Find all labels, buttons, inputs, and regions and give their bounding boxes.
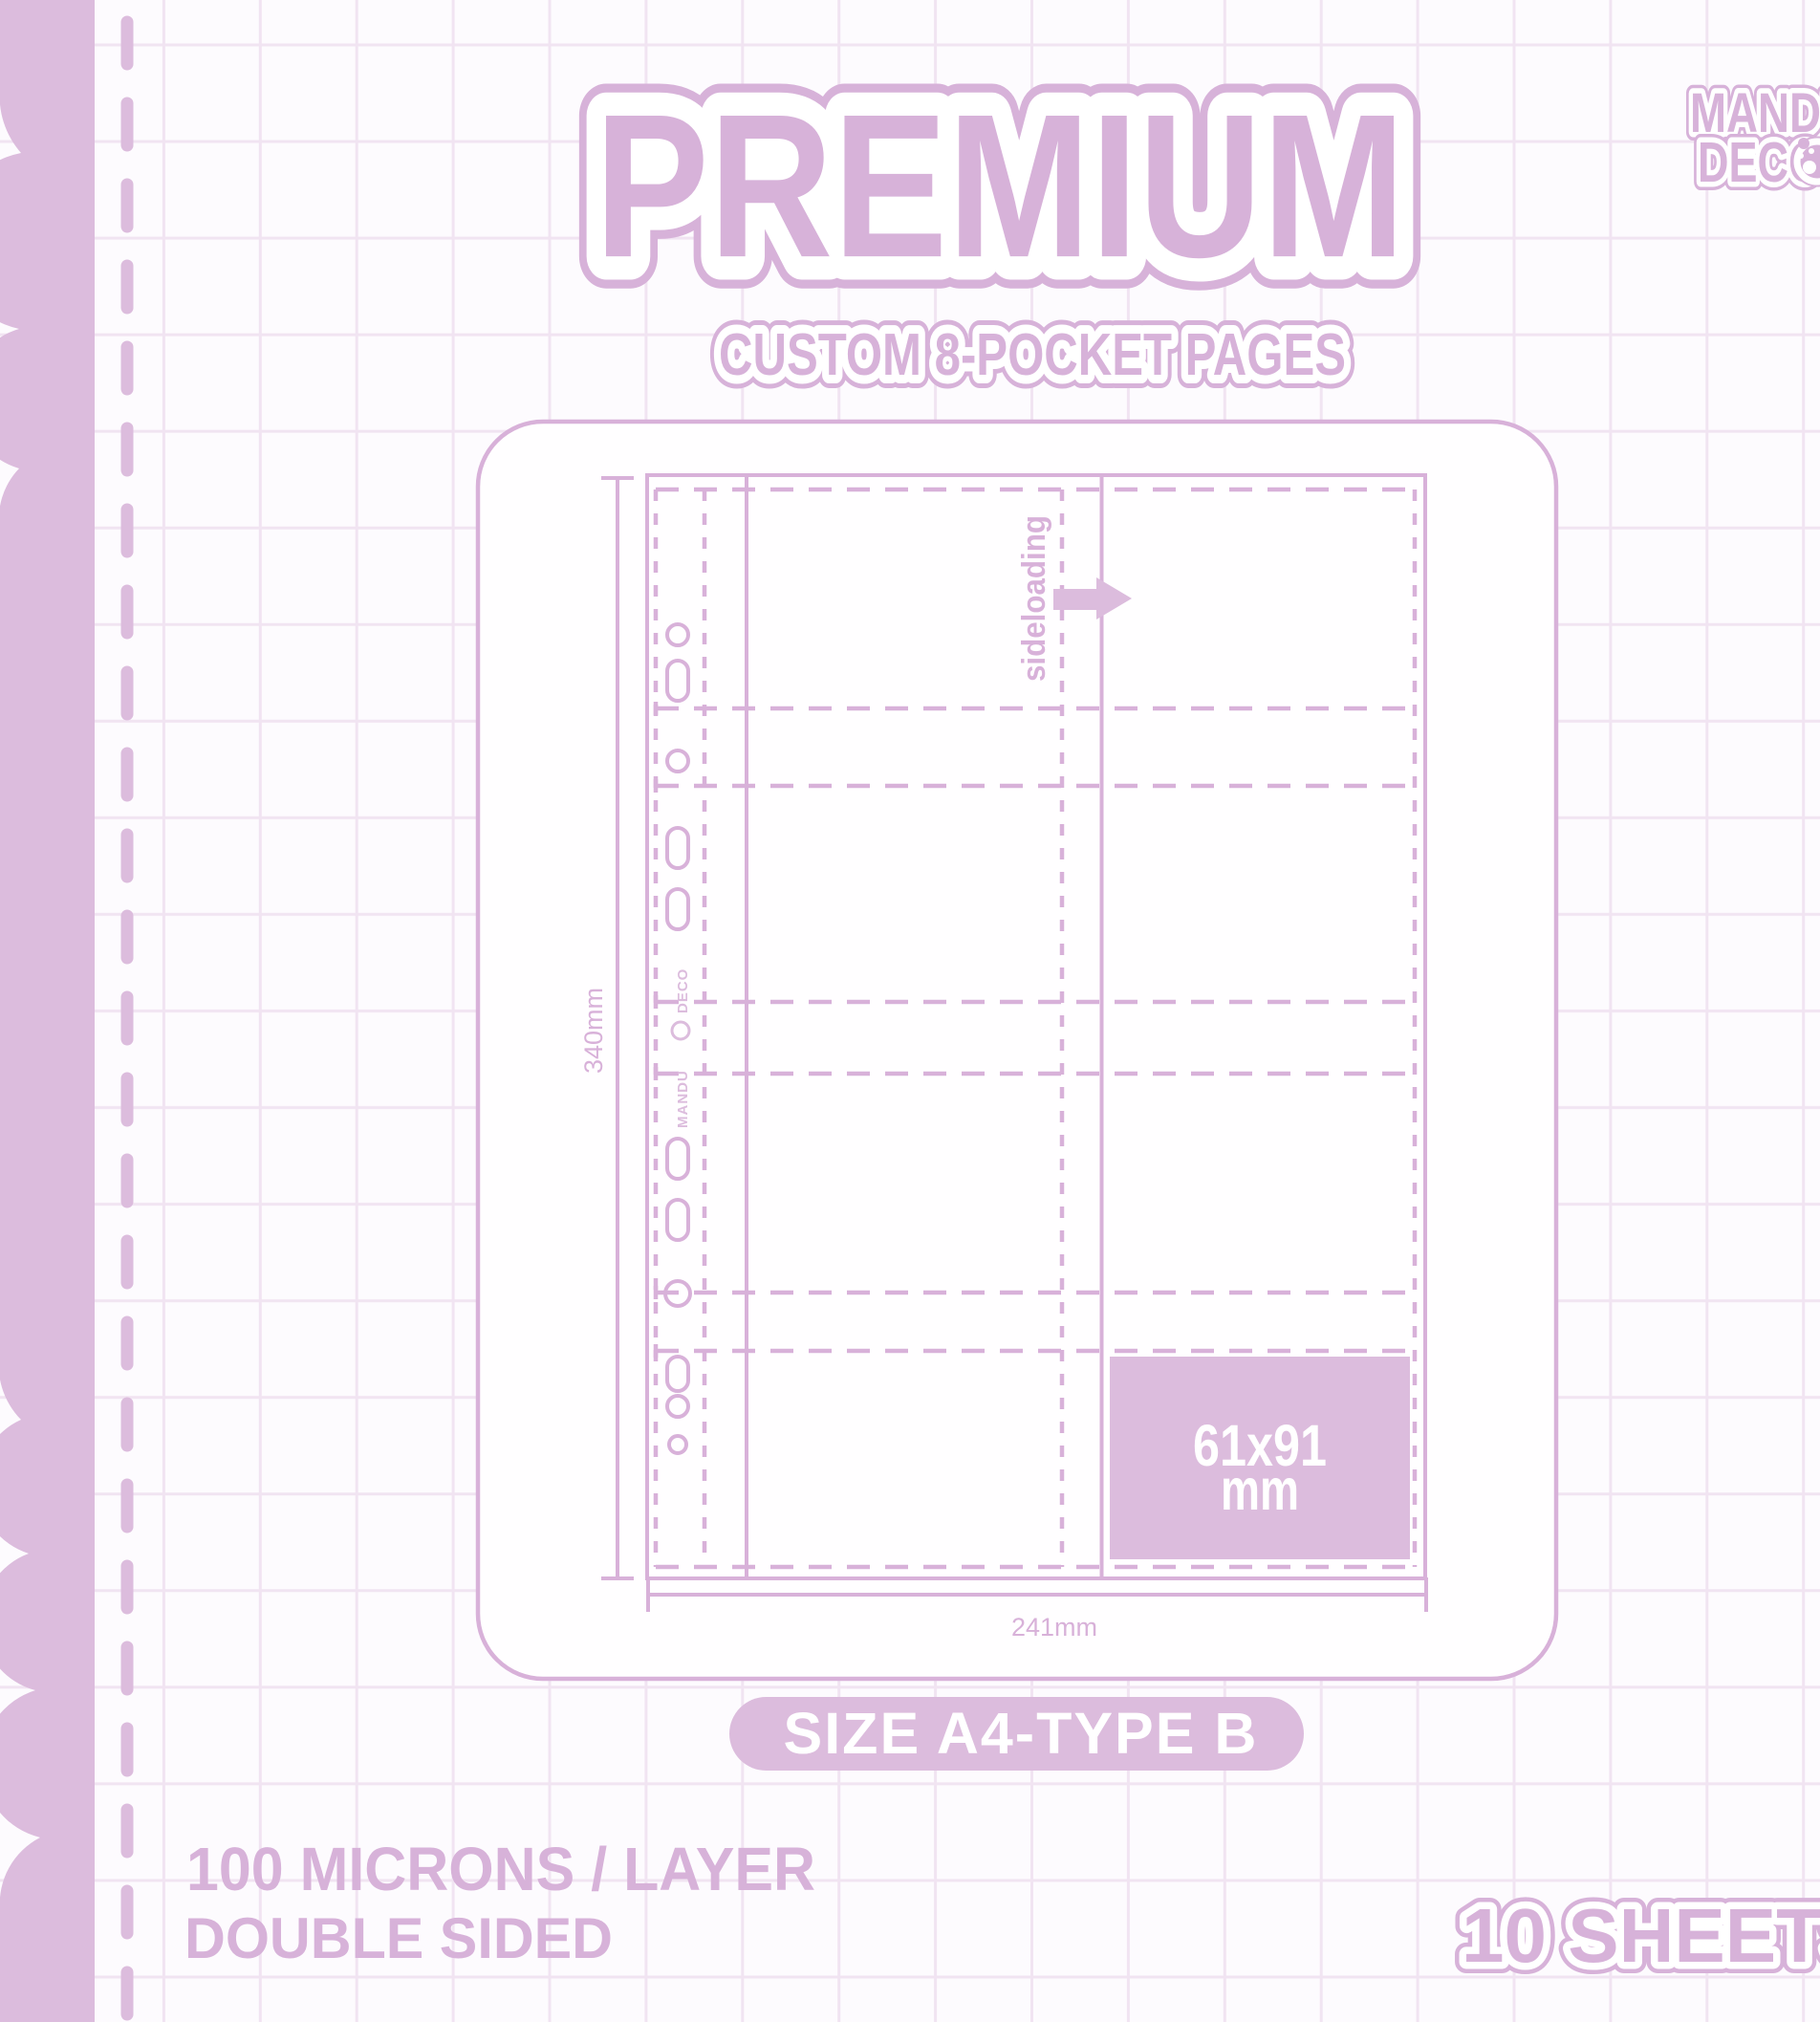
svg-text:100 MICRONS / LAYER: 100 MICRONS / LAYER bbox=[186, 1835, 815, 1903]
svg-text:340mm: 340mm bbox=[579, 988, 608, 1074]
svg-text:SIZE A4-TYPE B: SIZE A4-TYPE B bbox=[784, 1701, 1259, 1766]
svg-text:DOUBLE SIDED: DOUBLE SIDED bbox=[184, 1906, 613, 1970]
svg-text:mm: mm bbox=[1221, 1457, 1299, 1522]
svg-text:10 SHEETS: 10 SHEETS bbox=[1462, 1893, 1820, 1978]
svg-text:MANDU: MANDU bbox=[675, 1070, 691, 1128]
svg-text:PREMIUM: PREMIUM bbox=[595, 73, 1405, 301]
svg-text:CUSTOM 8-POCKET PAGES: CUSTOM 8-POCKET PAGES bbox=[719, 322, 1346, 388]
svg-text:241mm: 241mm bbox=[1011, 1613, 1097, 1642]
svg-text:sideloading: sideloading bbox=[1016, 515, 1052, 682]
svg-text:DECO: DECO bbox=[675, 968, 691, 1013]
